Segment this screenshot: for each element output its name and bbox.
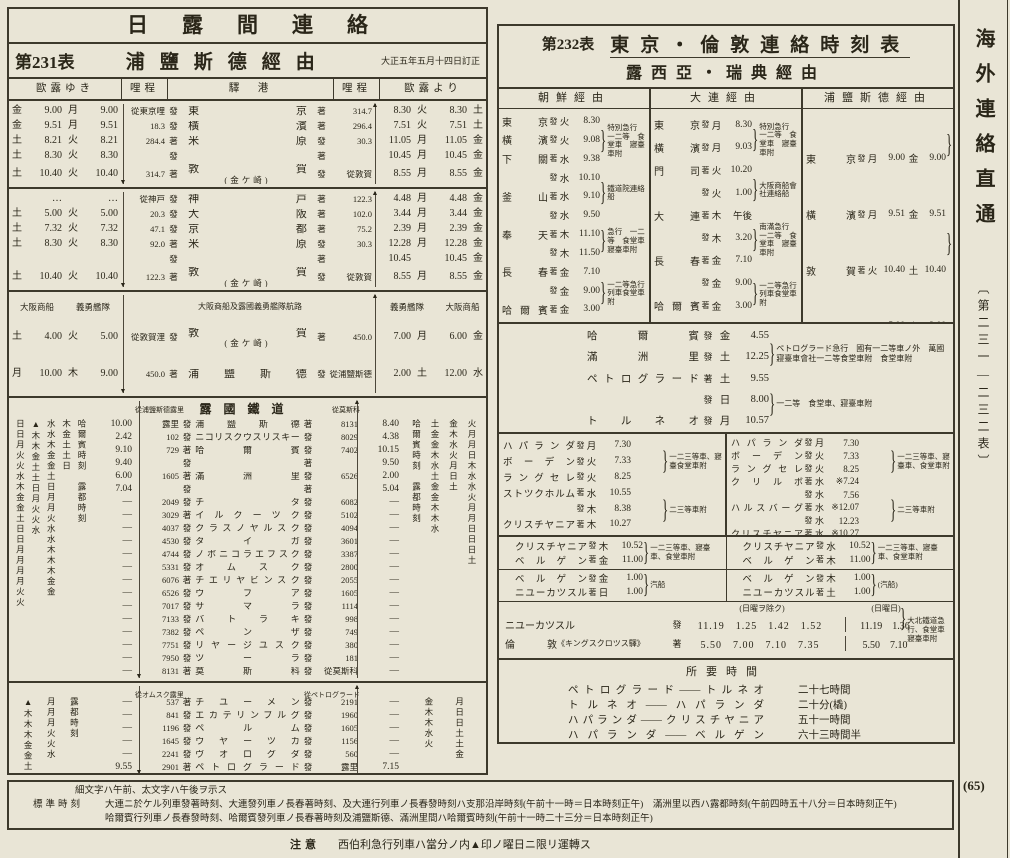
arr-mark: 著 [302,459,314,468]
station-name: 長春 [654,253,700,268]
dep-arr-mark: 發 [700,187,711,198]
service-note: }露國義勇艦隊大阪商船會社連絡船 [946,180,952,309]
station-name: 東京 [502,114,548,129]
dep-arr-mark: 著 [700,210,711,221]
steamer-left-rows: ベルゲン 發 金 1.00 ニユーカツスル 著 日 1.00 [515,571,643,599]
verst-up: 從莫斯科 [314,667,360,676]
up-time: 8.40 [360,420,402,430]
station-name: 奉天 [502,227,548,242]
station-name [193,459,302,468]
route-dairen-rows: 東京 發 月 8.30 橫濱 發 月 9.03 門司 著 火 [654,111,752,320]
arr-mark: 發 [302,550,314,559]
day: 水 [559,152,570,166]
station-name: ペルム [193,724,302,733]
time: 10.27 [597,519,631,529]
steamer-row: ベルゲン 發 木 1.00 [743,571,871,585]
day: 火 [586,470,597,484]
station-name: 倫敦 [505,636,557,651]
go-day-2: 火 [65,151,81,162]
go-day: 土 [9,136,25,147]
day-2: 土 [908,263,919,277]
day: 土 [717,349,733,364]
go-day-2: 火 [65,239,81,250]
station-name: 敦賀(金ケ崎) [180,267,315,287]
weekday-times: 5.50 7.00 7.10 7.35 [685,636,835,651]
station-name: ベルゲン [743,553,815,567]
time: 1.00 [837,587,871,597]
service-note: }一二等急行列車食堂車附 [600,281,648,307]
mileage-origin-label: 從浦鹽斯德露里 [135,402,184,419]
day: 水 [586,486,597,500]
day: 金 [559,284,570,298]
service-note: }特別急行 一二等 食堂車 寢臺車附 [752,123,800,158]
day: 月 [814,436,825,449]
return-time-2: 4.48 [430,194,470,205]
timetable-row: 土 10.40 火 10.40 122.3 著 敦賀(金ケ崎) 發 從敦賀 8.… [9,267,486,287]
station-name: 莫斯科 [193,667,302,676]
mileage-down: 47.1 [121,225,167,234]
verst-down: 5331 [135,563,181,572]
mileage-up: 296.4 [328,122,374,131]
scand-row: ハパランダ 發 月 7.30 [503,438,662,452]
england-row: 倫敦 《キングスクロツス驛》 著 5.50 7.00 7.10 7.35 5.5… [505,634,951,653]
station-name: 下關 [502,151,548,166]
go-day-2: 火 [65,136,81,147]
time: 9.50 [570,210,600,220]
dep-mark: 發 [181,563,193,572]
mileage-up: 75.2 [328,225,374,234]
dep-mark: 發 [167,107,180,116]
go-day-2: 火 [65,169,81,180]
dep-arr-mark: 發 [587,540,598,551]
dep-mark: 發 [181,485,193,494]
england-row: ニユーカツスル 發 11.19 1.25 1.42 1.52 11.19 1.3… [505,615,951,634]
scand-row: 發 水 12.23 [731,514,890,527]
up-arrow: ▲ [375,295,376,393]
company-volunteer-fleet: 義勇艦隊 [379,301,435,313]
down-time: ― [93,615,135,625]
time: 7.56 [825,490,859,500]
day: 土 [717,371,733,386]
timetable-row: 土 8.21 火 8.21 284.4 著 米原 發 30.3 11.05 月 … [9,134,486,149]
down-arrow: ▼ [123,104,124,184]
arr-mark: 著 [315,333,328,342]
up-time: ― [360,698,402,708]
up-time: ― [360,563,402,573]
dep-mark: 發 [167,255,180,264]
day: 木 [711,208,722,222]
down-time: ― [93,498,135,508]
day: 水 [826,539,837,553]
verst-down: 2241 [135,750,181,759]
day-columns-left: 日日月火火水木金金土日日月月月月火火▲木木金土土日月火火水水水木金金土日月月火水… [9,418,93,678]
omsk-branch-header: 從オムスク露里 從ペトログラード [9,686,486,696]
up-arrow: ▲ [357,401,358,678]
station-name: 橫濱 [502,132,548,147]
up-arrow: ▲ [375,104,376,184]
dep-mark: 發 [181,654,193,663]
station-name: チタ [193,498,302,507]
verst-up: 8029 [314,433,360,442]
arr-mark: 發 [302,537,314,546]
time: 3.00 [570,304,600,314]
day-column: 木金土土日 [62,419,71,677]
station-name: 神戸 [180,194,315,206]
timetable-row: 土 8.30 火 8.30 發 著 10.45 月 10.45 金 [9,149,486,164]
station-name: チエリヤビンスク [193,576,302,585]
station-name: 哈爾賓 [587,328,699,343]
section-sea-route: 大阪商船 義勇艦隊 大阪商船及露國義勇艦隊航路 義勇艦隊 大阪商船 土 4.00… [9,292,486,398]
dep-arr-mark: 發 [699,393,717,406]
down-time: ― [93,524,135,534]
return-day-2: 土 [470,106,486,117]
dep-arr-mark: 發 [803,450,814,461]
route-row: 下關 著 水 9.38 [502,150,600,167]
station-name: サマラ [193,602,302,611]
dep-mark: 發 [167,152,180,161]
brace-glyph: } [769,388,775,421]
arr-mark: 發 [302,433,314,442]
day: 月 [711,140,722,154]
up-arrow: ▲ [357,686,358,773]
route-via-vladivostok: 浦鹽斯德經由 東京 發 月 9.00 金 9.00 橫濱 發 月 [801,89,953,322]
day: 火 [711,186,722,200]
service-note: }一二等 食堂車、寢臺車附 [769,396,949,412]
day: 木 [826,571,837,585]
scand-row: 發 木 8.38 [503,502,662,516]
dep-arr-mark: 發 [575,503,586,514]
arr-mark: 發 [302,654,314,663]
day: 金 [711,276,722,290]
day: 水 [814,475,825,488]
timetable-row: 發 著 10.45 10.45 金 [9,252,486,267]
route-via-dairen: 大連經由 東京 發 月 8.30 橫濱 發 月 9.03 [649,89,801,322]
verst-down: 841 [135,711,181,720]
time: 12.23 [825,516,859,526]
time: 1.00 [722,188,752,198]
day: 水 [559,208,570,222]
station-name: 大連 [654,208,700,223]
route-korea-rows: 東京 發 火 8.30 橫濱 發 火 9.08 下關 著 水 [502,111,600,320]
route-row: 發 火 5.00 土 2.00 [806,318,946,322]
route-row: 橫濱 發 月 9.51 金 9.51 [806,206,946,223]
norway-row: クリスチヤニア 發 水 10.52 [743,539,871,553]
route-row: 發 水 10.10 [502,169,600,186]
port-name: ベルゲン [743,571,815,585]
brace-glyph: } [643,570,649,600]
dep-arr-mark: 發 [856,321,867,322]
day: 木 [598,539,609,553]
up-time: ― [360,737,402,747]
return-time-2: 3.44 [430,209,470,220]
go-day: 土 [9,239,25,250]
return-day: 土 [414,369,430,380]
station-name: エカテリンブルグ [193,711,302,720]
dep-mark: 著 [181,763,193,772]
down-time: ― [93,698,135,708]
go-day: 土 [9,169,25,180]
day: 火 [867,319,878,321]
arr-mark: 發 [302,750,314,759]
verst-down: 露里 [135,420,181,429]
time: 9.00 [570,286,600,296]
route-dairen-title: 大連經由 [651,89,801,109]
station-name: ラングセレ [731,462,803,475]
russian-railway-title: 露國鐵道 從浦鹽斯德露里 從莫斯科 [9,401,486,418]
arr-mark: 著 [315,195,328,204]
day: 金 [559,302,570,316]
return-day-2: 土 [470,121,486,132]
dep-mark: 著 [181,576,193,585]
day: 日 [598,585,609,599]
day: 火 [711,163,722,177]
down-time: ― [93,602,135,612]
verst-up: 2800 [314,563,360,572]
return-time: 10.45 [374,151,414,162]
brace-glyph: } [900,602,906,656]
up-time: 10.15 [360,446,402,456]
mileage-down: 18.3 [121,122,167,131]
mileage-down: 從東京哩 [121,107,167,116]
return-day-2: 金 [470,136,486,147]
arr-mark: 著 [315,255,328,264]
return-day-2: 金 [470,194,486,205]
duration-route: ペトログラード——トルネオ [568,682,764,697]
up-time: ― [360,589,402,599]
day: 水 [814,527,825,535]
go-day-2: 木 [65,369,81,380]
verst-down: 1645 [135,737,181,746]
day: 火 [867,263,878,277]
time-2: 9.51 [919,209,946,219]
day: 木 [559,227,570,241]
time: 10.52 [837,541,871,551]
station-name: 橫濱 [806,207,856,222]
down-time: ― [93,589,135,599]
dep-mark: 發 [181,459,193,468]
return-day-2: 金 [470,169,486,180]
time: 1.00 [609,573,643,583]
mileage-up: 30.3 [328,137,374,146]
brace-glyph: } [946,229,952,259]
day: 金 [711,299,722,313]
station-name: ペトログラード [587,371,699,386]
dep-arr-mark: 發 [803,437,814,448]
dep-mark: 發 [181,737,193,746]
left-table-header: 第231表 浦鹽斯德經由 大正五年五月十四日訂正 [9,44,486,79]
down-time: ― [93,641,135,651]
down-time: 7.04 [93,485,135,495]
go-time: 9.00 [25,106,65,117]
steamer-right-rows: ベルゲン 發 木 1.00 ニユーカツスル 著 土 1.00 [743,571,871,599]
dep-arr-mark: 著 [587,554,598,565]
go-day: 土 [9,209,25,220]
up-time: 4.38 [360,433,402,443]
return-time-2: 10.45 [430,254,470,265]
station-name: 橫濱 [654,140,700,155]
go-day: 土 [9,224,25,235]
page-margin-strip: 海外連絡直通 〔第二三一—二三二表〕 (65) [958,0,1008,858]
standard-time-texts: 大連ニ於ケル列車發著時刻、大連發列車ノ長春著時刻、及大連行列車ノ長春發時刻ハ支那… [105,799,944,827]
table-232: 第232表 東京・倫敦連絡時刻表 露西亞・瑞典經由 朝鮮經由 東京 發 火 8.… [497,24,955,744]
verst-up: 380 [314,641,360,650]
dep-mark: 發 [181,550,193,559]
dep-arr-mark: 著 [700,165,711,176]
mileage-up: 122.3 [328,195,374,204]
scand-row: ハパランダ 發 月 7.30 [731,436,890,449]
arr-mark: 發 [315,240,328,249]
verst-down: 7133 [135,615,181,624]
mileage-origin-label: 從オムスク露里 [135,687,184,704]
dep-arr-mark: 發 [803,463,814,474]
table-232-title: 東京・倫敦連絡時刻表 [610,30,910,58]
return-day-2: 金 [470,224,486,235]
day: 水 [559,171,570,185]
arr-mark: 發 [302,498,314,507]
day: 火 [559,133,570,147]
arr-mark: 發 [315,370,328,379]
time: 11.10 [570,229,600,239]
day-column: ▲木木金土土日月火火水 [31,419,40,677]
dep-mark: 發 [181,711,193,720]
service-note: }一二三等車、寢臺車、食堂車附 [890,452,952,470]
left-table-body: 金 9.00 月 9.00 從東京哩 發 東京 著 314.7 8.30 火 8… [9,101,486,773]
time: 7.10 [722,255,752,265]
scand-row: ラングセレ 發 火 8.25 [731,462,890,475]
go-day: 土 [9,151,25,162]
mid-row: トルネオ 發 月 10.57 [587,413,769,428]
verst-down: 4744 [135,550,181,559]
scand-row: ストツクホルム 著 水 10.55 [503,486,662,500]
verst-up: 998 [314,615,360,624]
verst-up: 5102 [314,511,360,520]
page-number: (65) [960,778,985,794]
station-name: 哈爾賓 [193,446,302,455]
sea-route-label: 大阪商船及露國義勇艦隊航路 [167,303,333,312]
arr-mark: 著 [315,152,328,161]
dep-mark: 發 [167,122,180,131]
norway-right-rows: クリスチヤニア 發 水 10.52 ベルゲン 著 木 11.00 [743,539,871,567]
day: 月 [717,413,733,428]
station-name: 東京 [180,106,315,118]
mileage-down: 92.0 [121,240,167,249]
time: 10.20 [722,165,752,175]
route-columns: 朝鮮經由 東京 發 火 8.30 橫濱 發 火 9.08 [499,89,953,324]
day: 月 [867,207,878,221]
dep-mark: 發 [181,498,193,507]
return-day-2: 金 [470,151,486,162]
return-time-2: 11.05 [430,136,470,147]
port-name: ニユーカツスル [743,585,815,599]
station-name: 滿洲里 [587,349,699,364]
dep-arr-mark: 著 [548,229,559,240]
steamer-right: ベルゲン 發 木 1.00 ニユーカツスル 著 土 1.00 }(汽船) [726,570,954,601]
route-korea-title: 朝鮮經由 [499,89,649,109]
station-name: 浦鹽斯德 [193,420,302,429]
up-time: ― [360,576,402,586]
go-time: 10.40 [25,272,65,283]
return-day: 月 [414,224,430,235]
station-name: ニユーカツスル [505,617,557,632]
station-name [180,254,315,266]
service-note: }大阪商船會社連絡船 [752,182,800,199]
brace-glyph: } [643,538,649,568]
col-header-return: 歐露より [379,79,486,99]
caution-label: 注意 [290,836,320,852]
dep-mark: 發 [181,628,193,637]
up-time: ― [360,498,402,508]
down-time: 9.55 [93,763,135,773]
steamer-left: ベルゲン 發 金 1.00 ニユーカツスル 著 日 1.00 }汽船 [499,570,726,601]
time: 7.10 [570,267,600,277]
section-tokyo-line: 金 9.00 月 9.00 從東京哩 發 東京 著 314.7 8.30 火 8… [9,101,486,189]
dep-arr-mark: 發 [548,172,559,183]
england-service-note: }大北鐵道急行、食堂車寢臺車附 [900,616,952,643]
arr-mark: 發 [302,724,314,733]
arr-mark: 發 [302,524,314,533]
go-time: 9.51 [25,121,65,132]
go-time-2: 8.30 [81,151,121,162]
station-name: 大阪 [180,209,315,221]
durations-title: 所要時間 [499,663,953,679]
arr-mark: 發 [315,273,328,282]
down-arrow: ▼ [123,295,124,393]
down-time: ― [93,628,135,638]
day-column: 土金金木水土金金木木水 [431,419,440,677]
day-column: 哈爾賓時刻 露都時刻 [78,419,87,677]
day: 金 [711,253,722,267]
go-time: 4.00 [25,332,65,343]
dep-arr-mark: 發 [803,489,814,500]
mileage-down: 450.0 [121,370,167,379]
up-time: 9.50 [360,459,402,469]
day-2: 金 [908,207,919,221]
return-time-2: 6.00 [430,332,470,343]
dep-arr-mark: 發 [700,142,711,153]
krylbo-rows: ハパランダ 發 月 7.30 ボーデン 發 火 7.33 ラングセレ 發 火 8… [731,436,890,533]
day-column: 金木木水火 [424,697,433,773]
route-row: 哈爾賓 著 金 3.00 [654,297,752,314]
day: 日 [717,392,733,407]
route-via-korea: 朝鮮經由 東京 發 火 8.30 橫濱 發 火 9.08 [499,89,649,322]
time: ※7.24 [825,476,859,487]
station-name: ボーデン [731,449,803,462]
scand-row: クリスチヤニア 著 水 ※10.27 [731,527,890,535]
duration-time: 二十七時間 [798,682,884,697]
verst-down: 7017 [135,602,181,611]
dep-arr-mark: 著 [700,300,711,311]
company-volunteer-fleet: 義勇艦隊 [65,301,121,313]
station-name: クリスチヤニア [503,517,575,531]
go-time-2: 10.40 [81,169,121,180]
return-day: 月 [414,272,430,283]
route-row: 奉天 著 木 11.10 [502,226,600,243]
up-time: ― [360,711,402,721]
mid-rows: 哈爾賓 發 金 4.55 滿洲里 發 土 12.25 ペトログラード 著 土 9… [499,328,769,429]
dep-arr-mark: 著 [856,265,867,276]
go-day: 金 [9,121,25,132]
verst-up: 1605 [314,589,360,598]
service-note: }一二三等車、寢臺食堂車附 [662,452,724,470]
time: 10.10 [570,173,600,183]
return-time: 7.51 [374,121,414,132]
station-name: ツーラ [193,654,302,663]
day: 水 [814,488,825,501]
mid-row: 發 日 8.00 [587,392,769,407]
up-time: ― [360,602,402,612]
verst-up: 181 [314,654,360,663]
day-column: ▲木木木金金土 [24,697,33,773]
